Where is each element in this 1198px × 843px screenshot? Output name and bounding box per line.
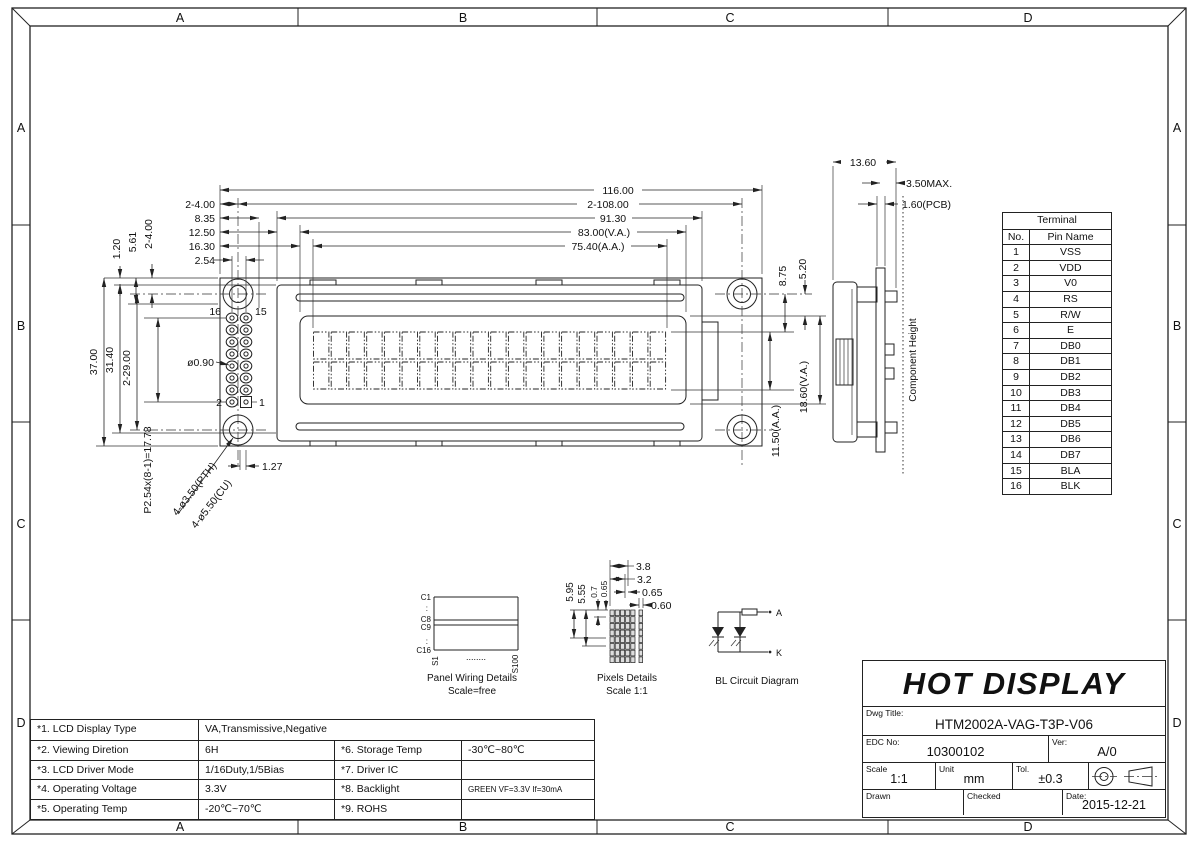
pin-name: BLK [1029, 478, 1111, 494]
wiring-dots-1: : [426, 604, 428, 613]
edc-no-value: 10300102 [927, 744, 985, 762]
pin-no: 16 [1003, 478, 1029, 494]
wiring-label-s100: S100 [511, 654, 520, 673]
pin-label-15: 15 [255, 306, 267, 318]
spec-value: 6H [198, 740, 334, 760]
pixel-dim-0-65: 0.65 [642, 587, 663, 599]
unit-value: mm [964, 771, 985, 789]
bezel-side-tab [702, 322, 718, 400]
pixels-details: 3.8 3.2 0.65 0.60 5.95 5.55 0.7 0.65 Pix… [565, 560, 672, 697]
pixels-details-title: Pixels Details [597, 673, 657, 684]
dim-hole-spacing: 2-108.00 [587, 199, 629, 211]
pin-no: 14 [1003, 447, 1029, 463]
bl-circuit-title: BL Circuit Diagram [715, 676, 799, 687]
pin-no: 4 [1003, 291, 1029, 307]
drawing-sheet: A B C D A B C D A B C D A B C D 116.00 2… [0, 0, 1198, 843]
zone-bottom-a: A [176, 820, 185, 834]
dim-hole-edge: 2-4.00 [185, 199, 215, 211]
pin-no: 10 [1003, 385, 1029, 401]
spec-value: 1/16Duty,1/5Bias [198, 760, 334, 780]
edc-no-label: EDC No: [866, 737, 900, 747]
pin-no: 15 [1003, 463, 1029, 479]
wiring-label-c9: C9 [421, 623, 432, 632]
pin-name: DB0 [1029, 338, 1111, 354]
pin-name: BLA [1029, 463, 1111, 479]
pin-no: 5 [1003, 307, 1029, 323]
zone-top-a: A [176, 11, 185, 25]
wiring-label-s1: S1 [431, 656, 440, 666]
panel-wiring-title: Panel Wiring Details [427, 673, 517, 684]
spec-value [461, 799, 594, 819]
pin-no: 3 [1003, 275, 1029, 291]
zone-right-c: C [1172, 517, 1181, 531]
pin-no: 2 [1003, 260, 1029, 276]
pixel-dim-0-7: 0.7 [589, 586, 599, 598]
spec-label: *1. LCD Display Type [31, 720, 198, 740]
spec-value: 3.3V [198, 779, 334, 799]
dim-side-max: 3.50MAX. [906, 178, 952, 190]
pin-name: DB4 [1029, 400, 1111, 416]
dim-16-30: 16.30 [189, 241, 215, 253]
projection-symbol-icon [1091, 764, 1163, 789]
spec-table: *1. LCD Display Type VA,Transmissive,Neg… [30, 719, 595, 820]
wiring-dots-h: ........ [466, 652, 486, 662]
pin-name: E [1029, 322, 1111, 338]
terminal-col-pin: Pin Name [1029, 229, 1111, 245]
wiring-label-c16: C16 [416, 646, 431, 655]
dim-hole-spacing-v: 2-29.00 [121, 350, 133, 386]
dim-8-35: 8.35 [195, 213, 216, 225]
display-bezel [277, 285, 702, 441]
dwg-title-label: Dwg Title: [866, 708, 903, 718]
zone-left-d: D [16, 716, 25, 730]
zone-right-d: D [1172, 716, 1181, 730]
front-view-dimensions: 116.00 2-108.00 91.30 83.00(V.A.) 75.40(… [88, 184, 826, 531]
zone-left-b: B [17, 319, 25, 333]
character-grid [314, 332, 666, 389]
dim-hole-edge-v: 2-4.00 [143, 219, 155, 249]
dim-pin-row-pitch: P2.54x(8-1)=17.78 [142, 426, 154, 513]
pin-no: 12 [1003, 416, 1029, 432]
scale-value: 1:1 [890, 771, 907, 789]
pin-no: 7 [1003, 338, 1029, 354]
pin-no: 1 [1003, 244, 1029, 260]
dim-aa-height: 11.50(A.A.) [770, 405, 782, 457]
dim-bezel-height: 31.40 [104, 347, 116, 373]
checked-label: Checked [967, 791, 1001, 801]
zone-top-b: B [459, 11, 467, 25]
panel-wiring-details: C1 : C8 C9 : C16 S1 S100 ........ Panel … [416, 593, 520, 697]
tol-label: Tol. [1016, 764, 1029, 774]
spec-label: *8. Backlight [334, 779, 461, 799]
spec-value: GREEN VF=3.3V If=30mA [461, 779, 594, 799]
pixel-dim-3-2: 3.2 [637, 574, 652, 586]
company-name: HOT DISPLAY [863, 661, 1165, 707]
pin-name: R/W [1029, 307, 1111, 323]
spec-value: VA,Transmissive,Negative [198, 720, 594, 740]
zone-left-a: A [17, 121, 26, 135]
dim-1-20: 1.20 [111, 239, 123, 260]
dim-pin-pitch: 2.54 [195, 255, 216, 267]
dim-side-width: 13.60 [850, 157, 876, 169]
ver-label: Ver: [1052, 737, 1067, 747]
dim-12-50: 12.50 [189, 227, 215, 239]
spec-label: *7. Driver IC [334, 760, 461, 780]
spec-label: *5. Operating Temp [31, 799, 198, 819]
pin-name: DB1 [1029, 353, 1111, 369]
pixel-dim-3-8: 3.8 [636, 561, 651, 573]
resistor-symbol [742, 609, 757, 615]
pin-label-1: 1 [259, 397, 265, 409]
scale-label: Scale [866, 764, 887, 774]
dim-side-pcb: 1.60(PCB) [902, 199, 951, 211]
title-block: HOT DISPLAY Dwg Title: HTM2002A-VAG-T3P-… [862, 660, 1166, 818]
bl-terminal-a: A [776, 608, 782, 618]
dim-overall-width: 116.00 [602, 185, 633, 197]
zone-right-b: B [1173, 319, 1181, 333]
side-view: 13.60 3.50MAX. 1.60(PCB) Component Heigh… [833, 156, 952, 476]
pin-name: DB3 [1029, 385, 1111, 401]
pixel-dim-0-65b: 0.65 [599, 580, 609, 597]
date-value: 2015-12-21 [1082, 797, 1146, 815]
dim-pin-hole-dia: ø0.90 [187, 357, 214, 369]
bezel-slot-top [296, 294, 684, 301]
spec-value: -20℃~70℃ [198, 799, 334, 819]
bezel-slot-bottom [296, 423, 684, 430]
zone-bottom-c: C [725, 820, 734, 834]
pin-no: 13 [1003, 431, 1029, 447]
display-window [300, 316, 686, 404]
bezel-tabs [310, 280, 680, 446]
dim-overall-height: 37.00 [88, 349, 100, 375]
component-height-label: Component Height [908, 318, 919, 402]
terminal-table: Terminal No.Pin Name 1VSS 2VDD 3V0 4RS 5… [1002, 212, 1112, 495]
dim-5-20: 5.20 [797, 259, 809, 280]
pin-no: 8 [1003, 353, 1029, 369]
dim-8-75: 8.75 [777, 266, 789, 287]
bl-terminal-k: K [776, 648, 782, 658]
zone-bottom-d: D [1023, 820, 1032, 834]
pin-no: 11 [1003, 400, 1029, 416]
spec-label: *4. Operating Voltage [31, 779, 198, 799]
pin-label-2: 2 [216, 397, 222, 409]
unit-label: Unit [939, 764, 954, 774]
pin-name: V0 [1029, 275, 1111, 291]
drawn-label: Drawn [866, 791, 891, 801]
wiring-label-c1: C1 [421, 593, 432, 602]
pixel-dim-5-95: 5.95 [565, 582, 576, 602]
dim-1-27: 1.27 [262, 461, 283, 473]
pixel-dim-5-55: 5.55 [577, 584, 588, 604]
spec-value [461, 760, 594, 780]
pin-no: 6 [1003, 322, 1029, 338]
pin-no: 9 [1003, 369, 1029, 385]
spec-label: *6. Storage Temp [334, 740, 461, 760]
side-connector [836, 339, 853, 385]
wiring-dots-2: : [426, 637, 428, 646]
spec-label: *3. LCD Driver Mode [31, 760, 198, 780]
ver-value: A/0 [1097, 744, 1117, 762]
zone-left-c: C [16, 517, 25, 531]
mounting-holes [223, 279, 757, 445]
dim-5-61: 5.61 [127, 232, 139, 253]
pin-name: RS [1029, 291, 1111, 307]
dim-bezel-width: 91.30 [600, 213, 626, 225]
zone-top-d: D [1023, 11, 1032, 25]
pin-name: DB2 [1029, 369, 1111, 385]
dim-aa-width: 75.40(A.A.) [571, 241, 624, 253]
terminal-col-no: No. [1003, 229, 1029, 245]
pin-name: VSS [1029, 244, 1111, 260]
dim-va-width: 83.00(V.A.) [578, 227, 630, 239]
pin-header-pads [226, 313, 252, 408]
zone-right-a: A [1173, 121, 1182, 135]
pin-name: VDD [1029, 260, 1111, 276]
spec-value: -30℃~80℃ [461, 740, 594, 760]
spec-label: *2. Viewing Diretion [31, 740, 198, 760]
panel-wiring-subtitle: Scale=free [448, 686, 497, 697]
pixel-matrix [610, 610, 643, 663]
dim-va-height: 18.60(V.A.) [798, 361, 810, 413]
pin-name: DB6 [1029, 431, 1111, 447]
zone-bottom-b: B [459, 820, 467, 834]
tol-value: ±0.3 [1038, 771, 1062, 789]
pin-label-16: 16 [209, 306, 221, 318]
dwg-title-value: HTM2002A-VAG-T3P-V06 [935, 717, 1093, 735]
pixels-details-subtitle: Scale 1:1 [606, 686, 648, 697]
pin-name: DB5 [1029, 416, 1111, 432]
bl-circuit-diagram: A K BL Circuit Diagram [709, 608, 799, 687]
spec-label: *9. ROHS [334, 799, 461, 819]
date-label: Date: [1066, 791, 1086, 801]
terminal-table-title: Terminal [1003, 213, 1111, 229]
zone-top-c: C [725, 11, 734, 25]
pin-name: DB7 [1029, 447, 1111, 463]
pixel-dim-0-60: 0.60 [651, 600, 672, 612]
